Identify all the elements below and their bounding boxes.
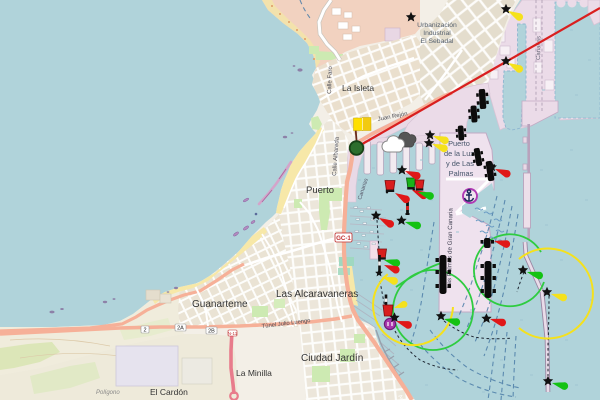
svg-text:Las Alcaravaneras: Las Alcaravaneras [276,289,358,300]
svg-text:2A: 2A [177,326,184,332]
svg-text:El Sebadal: El Sebadal [421,38,454,45]
svg-text:Calle Faro: Calle Faro [327,66,334,95]
svg-text:Puerto: Puerto [306,185,334,196]
svg-text:Ciudad Jardín: Ciudad Jardín [301,353,363,364]
svg-text:2B: 2B [208,329,215,335]
svg-text:GC-1: GC-1 [336,235,351,242]
svg-text:La Isleta: La Isleta [342,83,374,93]
svg-text:2: 2 [143,328,146,334]
svg-text:de la Luz: de la Luz [444,149,474,158]
svg-text:Polígono: Polígono [96,390,120,396]
svg-text:Urbanización: Urbanización [417,22,457,29]
svg-text:Industrial: Industrial [423,30,451,37]
svg-text:El Cardón: El Cardón [150,387,188,397]
svg-text:Puerto: Puerto [448,139,470,148]
svg-text:Canarias: Canarias [536,36,542,60]
svg-text:N-11: N-11 [228,331,238,336]
svg-text:La Minilla: La Minilla [236,368,272,378]
svg-text:Guanarteme: Guanarteme [192,299,248,310]
svg-text:y de Las: y de Las [446,159,474,168]
svg-text:Palmas: Palmas [449,169,474,178]
